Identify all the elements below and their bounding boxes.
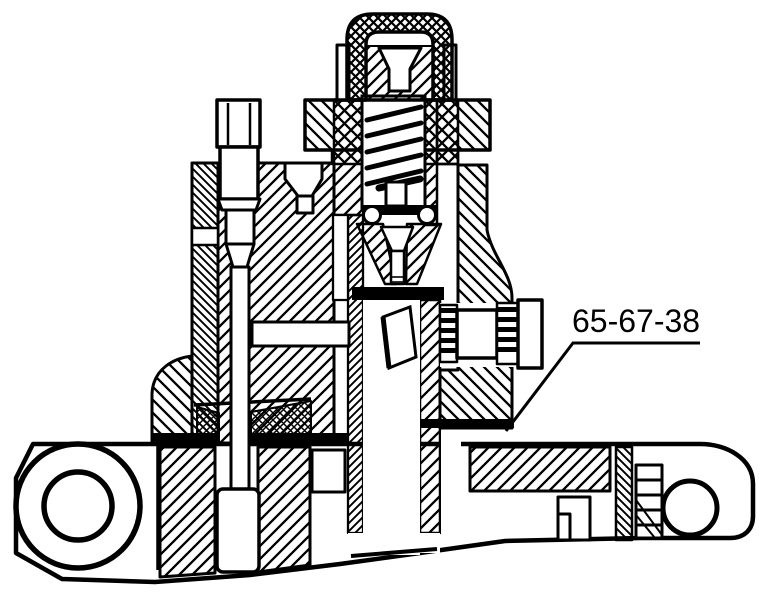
drawing-canvas: 65-67-38: [0, 0, 763, 600]
body-left-notch: [192, 228, 218, 245]
gland-left: [334, 100, 364, 215]
body-left-column: [192, 163, 218, 443]
plunger-neck: [226, 210, 254, 244]
valve-stem-top: [386, 182, 406, 206]
channel-gap-right: [441, 430, 461, 535]
body-base-band-mid: [250, 433, 349, 444]
fitting-cap: [518, 300, 542, 368]
gland-right-outer: [437, 100, 458, 164]
fitting-thread-left: [440, 305, 457, 362]
barrel-wall-left: [348, 215, 363, 533]
right-strip-fine: [616, 447, 632, 540]
barrel-wall-right: [420, 300, 440, 533]
chamber-wall-slit: [333, 215, 348, 300]
body-base-band-left: [152, 433, 219, 444]
left-boss-hole: [44, 472, 112, 540]
fitting-hex: [457, 310, 497, 358]
valve-seat: [352, 287, 444, 300]
plunger-head: [217, 100, 260, 147]
right-boss-hole: [663, 481, 717, 535]
knurled-cap: [334, 14, 458, 100]
base-bracket-detail: [558, 497, 590, 540]
plunger-stem: [231, 267, 249, 492]
side-fitting: [440, 300, 542, 368]
reflector-plate: [383, 307, 416, 368]
plunger-body: [220, 147, 258, 199]
base-slot: [312, 450, 345, 492]
plunger-collar: [218, 199, 260, 210]
part-callout-label: 65-67-38: [572, 303, 700, 339]
valve-stem-lower: [391, 251, 404, 284]
base-block-right: [470, 447, 610, 491]
base-block-mid: [258, 447, 310, 572]
cross-section-drawing: 65-67-38: [0, 0, 763, 600]
base-block-left: [160, 447, 215, 577]
valve-ball-right: [419, 207, 436, 224]
plunger-foot: [217, 489, 259, 572]
suction-channel: [252, 322, 349, 346]
fitting-thread-right: [497, 303, 518, 364]
valve-ball-left: [364, 207, 381, 224]
threaded-strip: [636, 465, 662, 538]
